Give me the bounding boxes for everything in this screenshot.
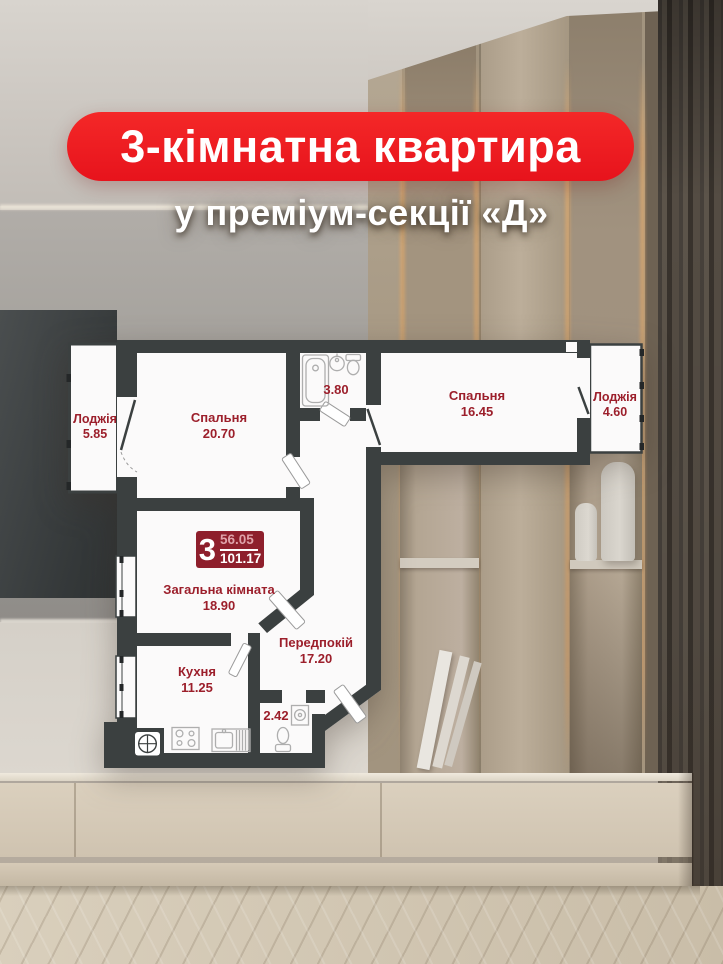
badge-room-count: 3 bbox=[199, 534, 216, 565]
window-kitchen bbox=[116, 656, 136, 718]
room-label-loggia-left: Лоджія 5.85 bbox=[73, 412, 117, 443]
room-label-wc: 2.42 bbox=[263, 708, 288, 724]
room-label-living-room: Загальна кімната 18.90 bbox=[163, 582, 274, 614]
badge-areas: 56.05 101.17 bbox=[220, 533, 261, 565]
real-estate-ad-poster: 3-кімнатна квартира у преміум-секції «Д»… bbox=[0, 0, 723, 964]
badge-total-area: 101.17 bbox=[220, 552, 261, 566]
room-label-kitchen: Кухня 11.25 bbox=[178, 664, 216, 696]
room-label-bedroom-2: Спальня 16.45 bbox=[449, 388, 505, 420]
room-label-loggia-right: Лоджія 4.60 bbox=[593, 390, 637, 421]
room-label-bedroom-1: Спальня 20.70 bbox=[191, 410, 247, 442]
banner-pill: 3-кімнатна квартира bbox=[67, 112, 634, 181]
window-living-room bbox=[116, 556, 136, 617]
stove-block bbox=[131, 728, 164, 759]
banner-title: 3-кімнатна квартира bbox=[120, 121, 581, 173]
banner-subtitle: у преміум-секції «Д» bbox=[0, 192, 723, 234]
badge-living-area: 56.05 bbox=[220, 533, 254, 547]
room-label-hallway: Передпокій 17.20 bbox=[279, 635, 353, 667]
room-label-bathroom: 3.80 bbox=[323, 382, 348, 398]
area-badge: 3 56.05 101.17 bbox=[196, 531, 264, 568]
